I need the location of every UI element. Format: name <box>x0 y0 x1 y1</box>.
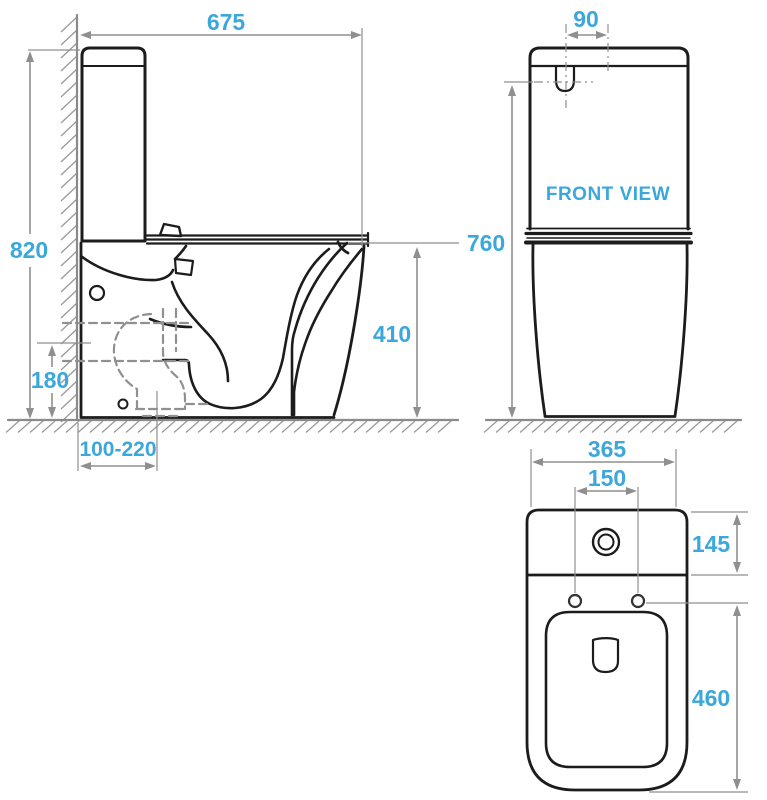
hatch-line <box>61 394 77 409</box>
arrowhead-icon <box>508 407 516 418</box>
hatch-line <box>61 95 77 110</box>
hatch-line <box>282 421 295 433</box>
front-lid-and-flush-button <box>530 66 688 91</box>
top-view <box>527 510 687 790</box>
hatch-line <box>61 30 77 45</box>
hatch-line <box>61 277 77 292</box>
hatch-line <box>6 421 19 433</box>
hatch-line <box>126 421 139 433</box>
hatch-line <box>688 421 701 433</box>
arrowhead-icon <box>48 407 56 418</box>
hatch-line <box>270 421 283 433</box>
wall-and-floor-line <box>8 15 458 420</box>
arrowhead-icon <box>26 408 34 419</box>
arrowhead-icon <box>576 487 587 495</box>
hatch-line <box>61 225 77 240</box>
hatch-line <box>61 173 77 188</box>
hatch-line <box>294 421 307 433</box>
arrowhead-icon <box>351 31 362 39</box>
hatch-line <box>378 421 391 433</box>
side-view <box>8 15 458 420</box>
hatch-line <box>61 251 77 266</box>
arrowhead-icon <box>567 31 578 39</box>
hatch-line <box>210 421 223 433</box>
hatch-line <box>234 421 247 433</box>
overall-width-label: 365 <box>588 436 627 462</box>
hatch-line <box>42 421 55 433</box>
hatch-line <box>162 421 175 433</box>
seat-hinge-hole-left <box>569 595 581 607</box>
hatch-line <box>174 421 187 433</box>
hatch-line <box>676 421 689 433</box>
side-floor-hatching <box>6 421 451 433</box>
outlet-setout-range-label: 100-220 <box>79 438 156 461</box>
hatch-line <box>318 421 331 433</box>
top-flush-button-outer <box>593 529 619 555</box>
hatch-line <box>508 421 521 433</box>
hatch-line <box>61 290 77 305</box>
hatch-line <box>258 421 271 433</box>
hatch-line <box>61 264 77 279</box>
hatch-line <box>532 421 545 433</box>
top-seat-outline <box>546 612 667 767</box>
hatch-line <box>102 421 115 433</box>
hatch-line <box>724 421 737 433</box>
button-width-label: 90 <box>573 6 599 32</box>
arrowhead-icon <box>413 407 421 418</box>
arrowhead-icon <box>48 345 56 356</box>
hinge-hole-centres-label: 150 <box>588 465 626 491</box>
bowl-depth-label: 460 <box>692 685 730 711</box>
hatch-line <box>61 238 77 253</box>
hatch-line <box>342 421 355 433</box>
arrowhead-icon <box>733 514 741 525</box>
overall-height-label: 820 <box>10 237 48 263</box>
hatch-line <box>246 421 259 433</box>
hatch-line <box>66 421 79 433</box>
hatch-line <box>61 329 77 344</box>
cistern-tank-outline <box>82 48 145 241</box>
hatch-line <box>114 421 127 433</box>
hatch-line <box>61 134 77 149</box>
hatch-line <box>556 421 569 433</box>
hatch-line <box>580 421 593 433</box>
hatch-line <box>712 421 725 433</box>
hatch-line <box>90 421 103 433</box>
hatch-line <box>366 421 379 433</box>
hatch-line <box>592 421 605 433</box>
arrowhead-icon <box>733 605 741 616</box>
hatch-line <box>306 421 319 433</box>
arrowhead-icon <box>145 462 156 470</box>
hatch-line <box>640 421 653 433</box>
hatch-line <box>520 421 533 433</box>
arrowhead-icon <box>508 85 516 96</box>
front-view-label: FRONT VIEW <box>546 184 670 205</box>
hatch-line <box>438 421 451 433</box>
hatch-line <box>616 421 629 433</box>
hatch-line <box>402 421 415 433</box>
hatch-line <box>61 342 77 357</box>
hatch-line <box>61 56 77 71</box>
hatch-line <box>652 421 665 433</box>
seat-height-label: 410 <box>373 321 411 347</box>
hatch-line <box>186 421 199 433</box>
arrowhead-icon <box>664 458 675 466</box>
hatch-line <box>390 421 403 433</box>
arrowhead-icon <box>80 462 91 470</box>
hatch-line <box>61 212 77 227</box>
hatch-line <box>604 421 617 433</box>
fixing-hole-lower <box>119 400 128 409</box>
arrowhead-icon <box>413 247 421 258</box>
hatch-line <box>30 421 43 433</box>
dimension-arrowheads <box>26 31 741 790</box>
arrowhead-icon <box>26 51 34 62</box>
tank-depth-label: 145 <box>692 531 731 557</box>
hatch-line <box>61 17 77 32</box>
arrowhead-icon <box>532 458 543 466</box>
hatch-line <box>426 421 439 433</box>
hatch-line <box>61 199 77 214</box>
hatch-line <box>54 421 67 433</box>
seat-lip <box>160 224 181 236</box>
fixing-hole-upper <box>90 286 104 300</box>
inlet-height-label: 180 <box>31 367 69 393</box>
hatch-line <box>354 421 367 433</box>
arrowhead-icon <box>626 487 637 495</box>
hatch-line <box>544 421 557 433</box>
dimension-annotations: 675 820 410 180 100-220 90 FRONT VIEW 76… <box>10 6 748 792</box>
hatch-line <box>222 421 235 433</box>
hatch-line <box>61 121 77 136</box>
hatch-line <box>484 421 497 433</box>
arrowhead-icon <box>733 562 741 573</box>
front-floor-hatching <box>484 421 737 433</box>
hatch-line <box>61 108 77 123</box>
hatch-line <box>61 160 77 175</box>
front-bowl-outline <box>533 245 687 417</box>
overall-depth-label: 675 <box>207 9 246 35</box>
hatch-line <box>568 421 581 433</box>
hatch-line <box>664 421 677 433</box>
hatch-line <box>414 421 427 433</box>
bowl-outer-outline <box>81 242 364 418</box>
toilet-technical-drawing: 675 820 410 180 100-220 90 FRONT VIEW 76… <box>0 0 767 800</box>
hatch-line <box>78 421 91 433</box>
front-view <box>486 48 741 420</box>
arrowhead-icon <box>80 31 91 39</box>
arrowhead-icon <box>733 779 741 790</box>
hatch-line <box>18 421 31 433</box>
hatch-line <box>496 421 509 433</box>
bowl-interior-curves <box>81 243 362 415</box>
top-water-inlet <box>593 638 618 672</box>
hatch-line <box>330 421 343 433</box>
hatch-line <box>61 82 77 97</box>
hatch-line <box>700 421 713 433</box>
seat-hinge-hole-right <box>632 595 644 607</box>
hatch-line <box>61 186 77 201</box>
arrowhead-icon <box>596 31 607 39</box>
hatch-line <box>61 69 77 84</box>
hatch-line <box>628 421 641 433</box>
hatch-line <box>61 303 77 318</box>
hatch-line <box>138 421 151 433</box>
hinge-bracket <box>175 259 193 275</box>
drawing-canvas: 675 820 410 180 100-220 90 FRONT VIEW 76… <box>0 0 767 800</box>
hatch-line <box>61 147 77 162</box>
hatch-line <box>198 421 211 433</box>
tank-height-label: 760 <box>467 230 505 256</box>
